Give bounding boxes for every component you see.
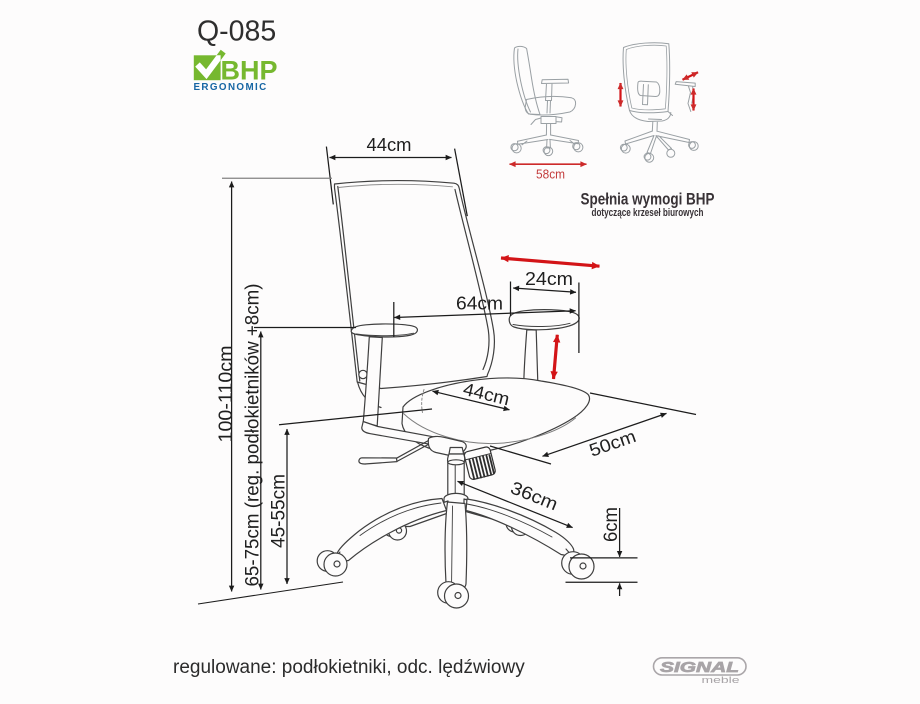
svg-text:65-75cm (reg. podłokietników +: 65-75cm (reg. podłokietników +8cm)	[243, 284, 264, 587]
svg-text:dotyczące krzeseł biurowych: dotyczące krzeseł biurowych	[592, 207, 704, 219]
svg-text:Spełnia wymogi BHP: Spełnia wymogi BHP	[581, 191, 715, 209]
svg-text:6cm: 6cm	[601, 507, 622, 542]
svg-text:ERGONOMIC: ERGONOMIC	[194, 82, 268, 93]
svg-text:58cm: 58cm	[536, 166, 565, 181]
svg-text:100-110cm: 100-110cm	[216, 346, 237, 443]
svg-text:meble: meble	[702, 675, 740, 686]
svg-text:44cm: 44cm	[367, 135, 412, 155]
svg-text:Q-085: Q-085	[197, 16, 276, 48]
svg-text:64cm: 64cm	[456, 294, 503, 314]
svg-text:SIGNAL: SIGNAL	[660, 660, 739, 676]
svg-text:regulowane: podłokietniki, odc: regulowane: podłokietniki, odc. lędźwiow…	[173, 657, 525, 678]
svg-text:45-55cm: 45-55cm	[269, 474, 290, 548]
svg-text:24cm: 24cm	[525, 269, 573, 289]
